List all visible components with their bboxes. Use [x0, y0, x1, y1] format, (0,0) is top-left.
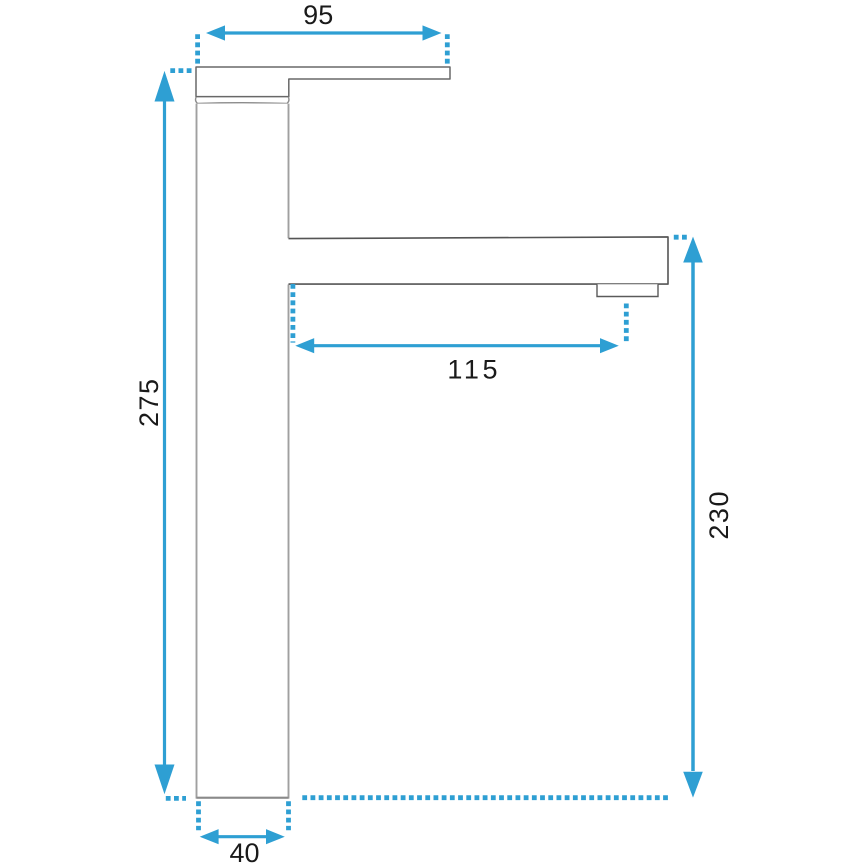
svg-text:230: 230	[704, 490, 734, 540]
svg-text:115: 115	[447, 354, 501, 384]
svg-text:275: 275	[134, 377, 164, 427]
svg-text:40: 40	[229, 838, 259, 868]
svg-text:95: 95	[303, 0, 333, 30]
